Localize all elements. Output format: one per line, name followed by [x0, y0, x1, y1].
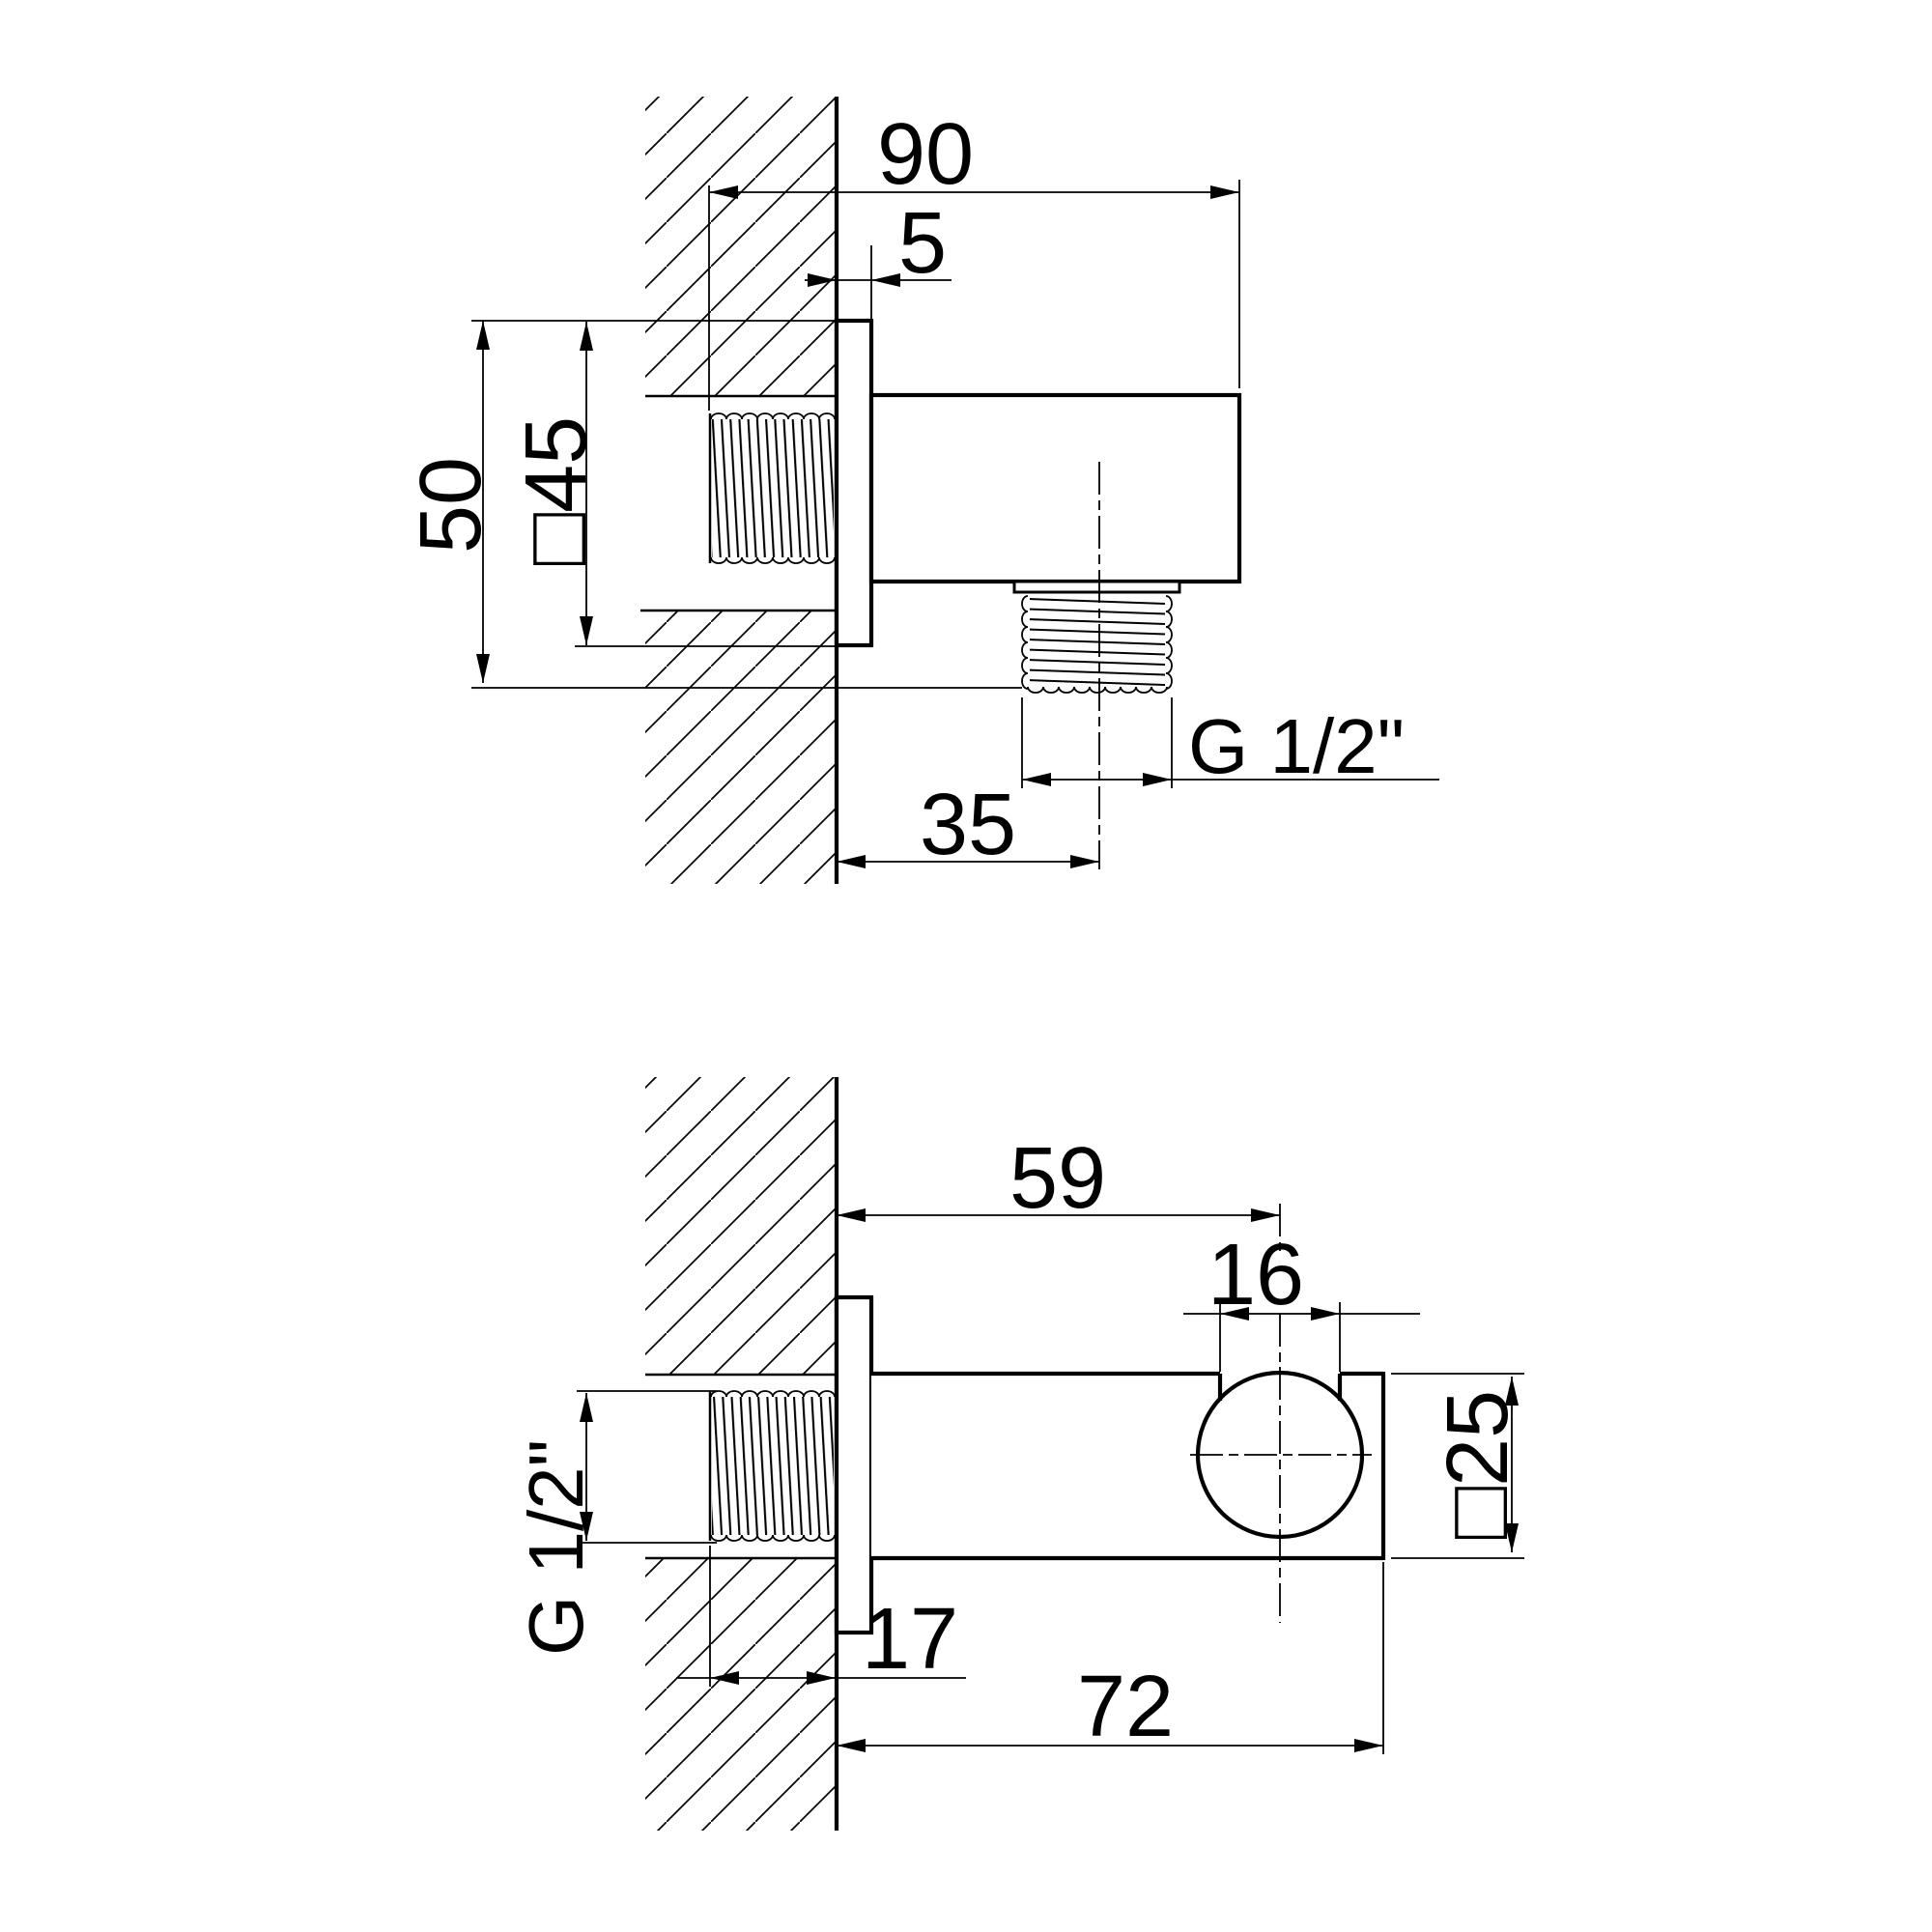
dim-flange-square-label: □45	[508, 416, 605, 565]
dim-overall-height-label: 50	[403, 457, 499, 554]
dim-overall-width-label: 90	[877, 106, 974, 203]
technical-drawing: 90 5 50 □45 G 1/2"	[0, 0, 1932, 1932]
dim-body-square-label: □25	[1430, 1390, 1526, 1539]
dim-socket-width-label: 16	[1207, 1227, 1304, 1323]
dim-thread-length-label: 17	[862, 1591, 958, 1688]
dim-inlet-thread-label: G 1/2"	[513, 1439, 599, 1656]
dim-outlet-thread-label: G 1/2"	[1188, 703, 1405, 789]
background	[0, 0, 1932, 1932]
outlet-thread	[1014, 582, 1179, 693]
dim-outlet-offset-label: 35	[920, 777, 1016, 873]
inwall-thread2	[710, 1391, 835, 1541]
flange-plate	[837, 321, 871, 645]
inwall-thread	[710, 413, 835, 563]
elbow-body	[871, 395, 1239, 582]
dim-overall-length-label: 72	[1077, 1659, 1174, 1755]
flange-plate2	[837, 1297, 871, 1633]
drawing-page: 90 5 50 □45 G 1/2"	[0, 0, 1932, 1932]
dim-center-from-wall-label: 59	[1009, 1130, 1106, 1227]
dim-flange-thickness-label: 5	[898, 195, 947, 292]
